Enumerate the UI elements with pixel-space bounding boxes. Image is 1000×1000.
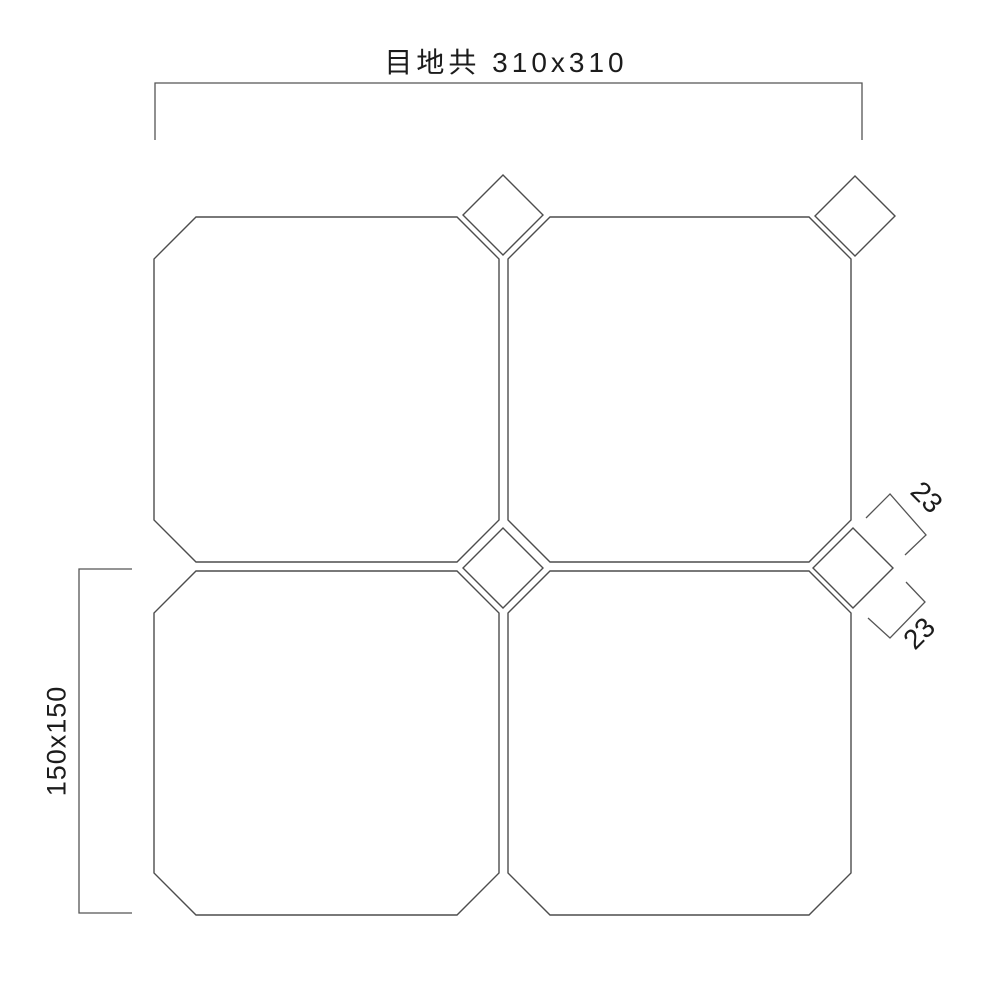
- top-dimension-bracket: [155, 83, 862, 140]
- insert-dimension-lower-label: 23: [897, 611, 941, 655]
- insert-dimension-upper-label: 23: [905, 475, 949, 519]
- left-dimension-bracket: [79, 569, 132, 913]
- left-dimension-label: 150x150: [41, 686, 71, 797]
- tile-layout-drawing: 目地共 310x310 150x150 23 23: [0, 0, 1000, 1000]
- diamond-insert-right-middle: [813, 528, 893, 608]
- octagon-tile-bottom-right: [508, 571, 851, 915]
- octagon-tile-top-right: [508, 217, 851, 562]
- octagon-tile-bottom-left: [154, 571, 499, 915]
- insert-dimension-lower: 23: [868, 582, 941, 655]
- left-dimension: 150x150: [41, 569, 132, 913]
- diamond-insert-center: [463, 528, 543, 608]
- octagon-tile-top-left: [154, 217, 499, 562]
- drawing-page: 目地共 310x310 150x150 23 23: [0, 0, 1000, 1000]
- top-dimension-label: 目地共 310x310: [384, 47, 627, 78]
- top-dimension: 目地共 310x310: [155, 47, 862, 140]
- diamond-insert-top-center: [463, 175, 543, 255]
- diamond-insert-top-right: [815, 176, 895, 256]
- insert-dimension-upper: 23: [866, 475, 949, 555]
